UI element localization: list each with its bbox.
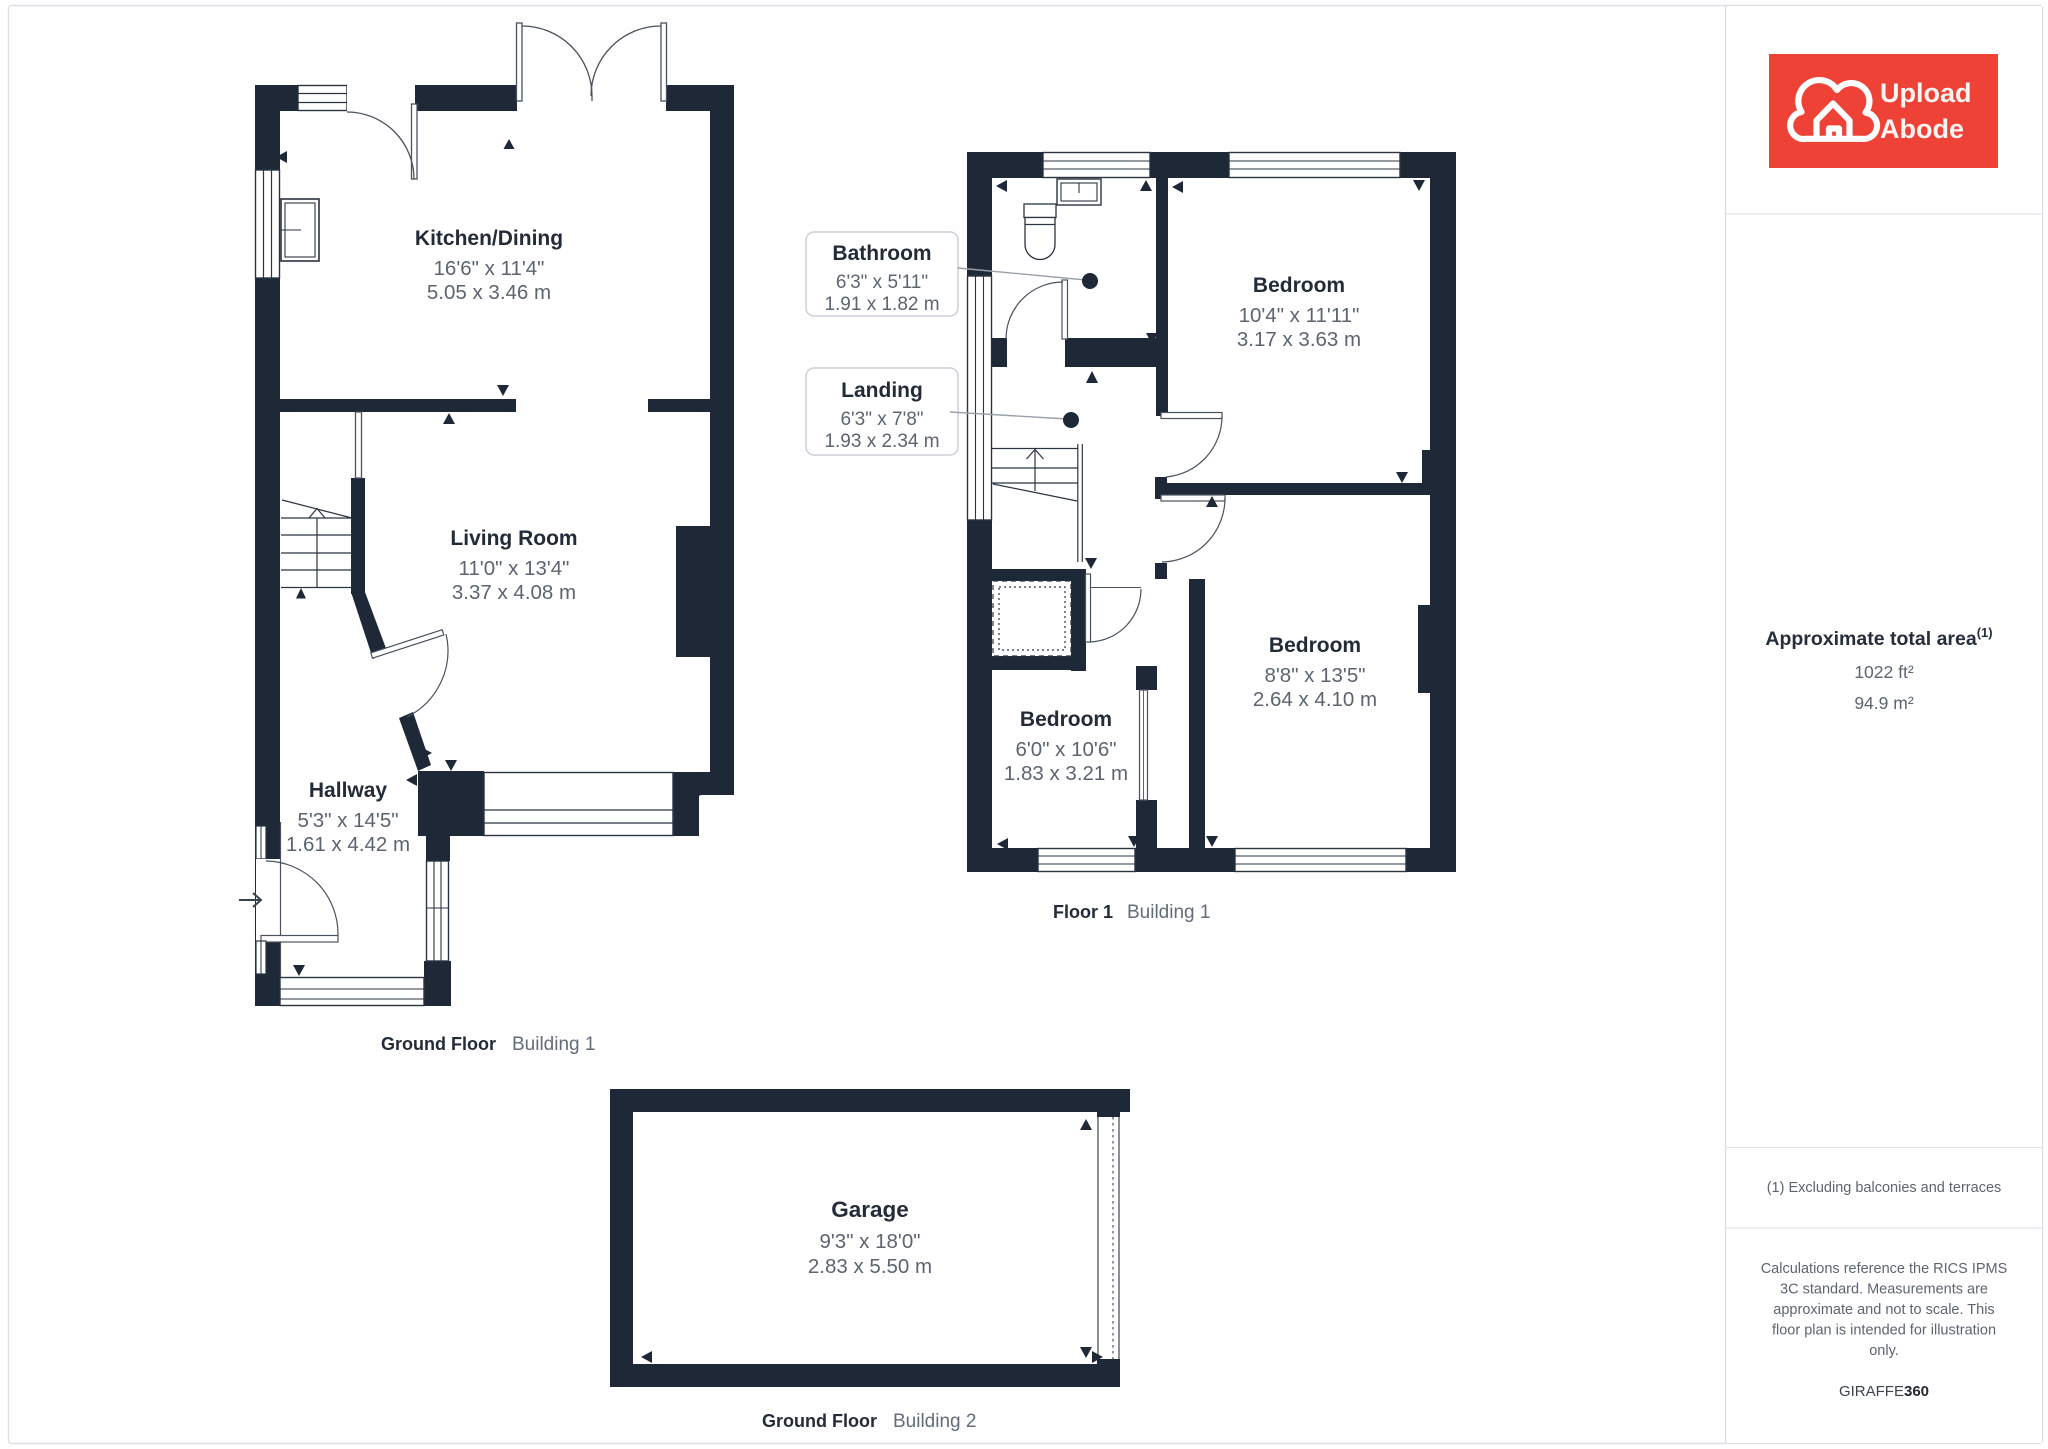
- svg-text:Approximate total area(1): Approximate total area(1): [1765, 625, 1992, 650]
- svg-text:Bedroom: Bedroom: [1269, 634, 1361, 657]
- svg-text:6'3" x 7'8": 6'3" x 7'8": [840, 409, 923, 430]
- svg-text:GIRAFFE360: GIRAFFE360: [1839, 1383, 1929, 1400]
- svg-text:(1) Excluding balconies and te: (1) Excluding balconies and terraces: [1767, 1180, 2002, 1196]
- svg-text:floor plan is intended for ill: floor plan is intended for illustration: [1772, 1323, 1996, 1339]
- svg-text:Building 2: Building 2: [893, 1411, 976, 1432]
- svg-text:Building 1: Building 1: [1127, 902, 1210, 923]
- svg-text:1.91 x 1.82 m: 1.91 x 1.82 m: [824, 294, 939, 315]
- svg-text:6'3" x 5'11": 6'3" x 5'11": [836, 272, 928, 293]
- svg-text:5'3" x 14'5": 5'3" x 14'5": [297, 809, 398, 832]
- svg-text:6'0" x 10'6": 6'0" x 10'6": [1015, 738, 1116, 761]
- svg-text:Garage: Garage: [831, 1197, 909, 1222]
- svg-text:3C standard. Measurements are: 3C standard. Measurements are: [1780, 1282, 1988, 1298]
- svg-text:Hallway: Hallway: [309, 779, 388, 802]
- svg-text:1022 ft²: 1022 ft²: [1854, 662, 1914, 682]
- svg-text:2.83 x 5.50 m: 2.83 x 5.50 m: [808, 1255, 932, 1278]
- svg-text:Ground Floor: Ground Floor: [762, 1411, 877, 1431]
- svg-text:Ground Floor: Ground Floor: [381, 1034, 496, 1054]
- svg-text:8'8" x 13'5": 8'8" x 13'5": [1264, 664, 1365, 687]
- svg-text:Bedroom: Bedroom: [1253, 274, 1345, 297]
- svg-text:10'4" x 11'11": 10'4" x 11'11": [1239, 304, 1360, 327]
- svg-text:Building 1: Building 1: [512, 1034, 595, 1055]
- svg-text:2.64 x 4.10 m: 2.64 x 4.10 m: [1253, 688, 1377, 711]
- svg-text:Upload: Upload: [1880, 78, 1972, 108]
- svg-text:94.9 m²: 94.9 m²: [1854, 693, 1913, 713]
- svg-text:9'3" x 18'0": 9'3" x 18'0": [819, 1230, 920, 1253]
- svg-text:5.05 x 3.46 m: 5.05 x 3.46 m: [427, 281, 551, 304]
- svg-text:16'6" x 11'4": 16'6" x 11'4": [434, 257, 545, 280]
- svg-text:1.83 x 3.21 m: 1.83 x 3.21 m: [1004, 762, 1128, 785]
- svg-text:3.17 x 3.63 m: 3.17 x 3.63 m: [1237, 328, 1361, 351]
- svg-text:only.: only.: [1869, 1343, 1899, 1359]
- svg-text:Living Room: Living Room: [450, 527, 577, 550]
- svg-text:approximate and not to scale.: approximate and not to scale. This: [1773, 1302, 1994, 1318]
- svg-text:Kitchen/Dining: Kitchen/Dining: [415, 227, 563, 250]
- svg-text:1.93 x 2.34 m: 1.93 x 2.34 m: [824, 431, 939, 452]
- svg-text:Bedroom: Bedroom: [1020, 708, 1112, 731]
- svg-text:11'0" x 13'4": 11'0" x 13'4": [459, 557, 570, 580]
- svg-text:3.37 x 4.08 m: 3.37 x 4.08 m: [452, 581, 576, 604]
- svg-text:1.61 x 4.42 m: 1.61 x 4.42 m: [286, 833, 410, 856]
- svg-text:Abode: Abode: [1880, 114, 1964, 144]
- svg-text:Landing: Landing: [841, 379, 923, 402]
- svg-text:Bathroom: Bathroom: [832, 242, 931, 265]
- svg-text:Calculations reference the RIC: Calculations reference the RICS IPMS: [1761, 1261, 2008, 1277]
- svg-text:Floor 1: Floor 1: [1053, 902, 1113, 922]
